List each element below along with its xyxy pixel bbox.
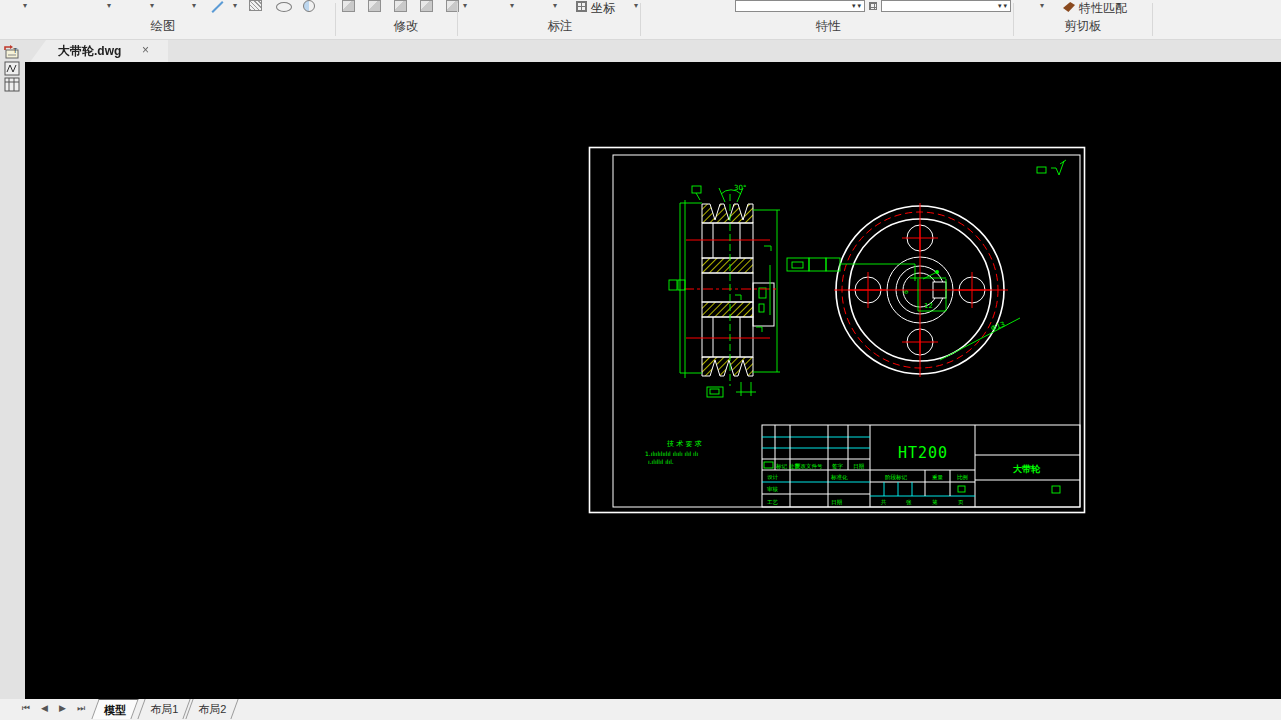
tb-process: 工艺 — [767, 499, 779, 505]
last-sheet-button[interactable]: ⏭ — [77, 703, 85, 714]
object-color-dropdown[interactable]: ▾ ▾ — [735, 0, 865, 12]
next-sheet-button[interactable]: ▶ — [59, 703, 66, 713]
tb-mark: 标记 — [775, 463, 788, 470]
front-view-annotations: 6 12 Φ13 — [787, 258, 1020, 360]
coordinates-button[interactable]: 坐标 — [591, 0, 615, 17]
dropdown-caret[interactable]: ▾ — [634, 1, 638, 11]
dim-groove-angle: 30° — [734, 184, 746, 192]
tb-scale: 比例 — [957, 474, 968, 481]
panel-label-annotate: 标注 — [515, 18, 605, 35]
tb-date: 日期 — [853, 463, 865, 470]
hatch-tool-icon[interactable] — [249, 0, 262, 11]
panel-label-draw: 绘图 — [118, 18, 208, 35]
match-properties-icon[interactable] — [1063, 0, 1075, 12]
dim-keyway-depth: 6 — [902, 290, 909, 294]
tb-page-no: 第 — [932, 499, 938, 505]
panel-divider — [1152, 3, 1153, 36]
left-tool-strip — [0, 62, 25, 699]
tab-layout1[interactable]: 布局1 — [137, 699, 190, 719]
pulley-drawing: 30° — [588, 146, 1086, 514]
paste-text-icon[interactable]: T — [3, 44, 21, 59]
tech-req-line1: 1.ılıılılıılıl ılıılı ılıl ılı — [645, 450, 698, 457]
document-tab-bar — [0, 40, 1281, 62]
dropdown-caret[interactable]: ▾ — [23, 1, 27, 11]
tb-design: 设计 — [767, 474, 779, 480]
rotate-tool-icon[interactable] — [394, 0, 407, 12]
tab-layout2[interactable]: 布局2 — [185, 699, 238, 719]
tb-standardize: 标准化 — [830, 474, 848, 481]
pulley-front-view — [834, 203, 1008, 377]
tab-model-label: 模型 — [96, 700, 134, 718]
dropdown-caret[interactable]: ▾ — [1040, 1, 1044, 11]
ellipse-tool-icon[interactable] — [276, 0, 292, 12]
dim-keyway-width: 12 — [924, 302, 933, 310]
panel-divider — [640, 3, 641, 36]
tech-req-title: 技 术 要 求 — [666, 440, 702, 448]
tab-layout1-label: 布局1 — [142, 699, 186, 717]
document-tab[interactable]: 大带轮.dwg × — [30, 40, 168, 62]
linetype-dropdown[interactable]: ▾ ▾ — [881, 0, 1011, 12]
panel-divider — [457, 3, 458, 36]
tech-req-line2: ı.ılıllıl ılıl. — [648, 458, 674, 465]
material-label: HT200 — [898, 444, 948, 462]
ribbon: ▾ ▾ ▾ ▾ ▾ ▾ ▾ ▾ 坐标 ▾ ▾ ▾ ▾ ▾ ▾ 特性匹配 绘图 修… — [0, 0, 1281, 40]
sheet-tab-bar: ⏮ ◀ ▶ ⏭ 模型 布局1 布局2 — [0, 699, 1281, 720]
dropdown-caret[interactable]: ▾ — [233, 1, 237, 11]
part-name-label: 大带轮 — [1013, 464, 1041, 474]
match-properties-button[interactable]: 特性匹配 — [1079, 0, 1127, 17]
tb-page: 页 — [958, 499, 964, 505]
panel-label-modify: 修改 — [361, 18, 451, 35]
dropdown-caret[interactable]: ▾ — [553, 1, 557, 11]
mirror-tool-icon[interactable] — [420, 0, 433, 12]
polyline-icon[interactable] — [3, 61, 21, 76]
line-tool-icon[interactable] — [210, 0, 225, 8]
tb-sheets: 张 — [906, 499, 912, 506]
properties-small-icon[interactable] — [869, 2, 877, 10]
copy-tool-icon[interactable] — [368, 0, 381, 12]
tb-sign: 签字 — [832, 463, 844, 470]
pulley-section-view: 30° — [669, 184, 780, 397]
tb-total: 共 — [880, 499, 887, 505]
technical-requirements: 技 术 要 求 1.ılıılılıılıl ılıılı ılıl ılı ı… — [645, 440, 702, 465]
panel-label-clipboard: 剪切板 — [1038, 18, 1128, 35]
dropdown-caret[interactable]: ▾ — [150, 1, 154, 11]
tb-date2: 日期 — [831, 499, 843, 506]
table-style-icon[interactable] — [3, 77, 21, 92]
close-tab-icon[interactable]: × — [142, 43, 149, 57]
tb-check: 审核 — [767, 486, 779, 492]
svg-text:T: T — [13, 47, 18, 54]
first-sheet-button[interactable]: ⏮ — [22, 703, 30, 714]
title-block: 标记 处数 更改文件号 签字 日期 设计 标准化 审核 工艺 日期 HT200 … — [762, 425, 1080, 507]
tb-weight: 重量 — [932, 474, 944, 480]
tb-change-file: 更改文件号 — [795, 463, 823, 469]
tab-model[interactable]: 模型 — [91, 699, 138, 719]
prev-sheet-button[interactable]: ◀ — [41, 703, 48, 713]
dropdown-caret[interactable]: ▾ — [510, 1, 514, 11]
panel-divider — [1013, 3, 1014, 36]
dim-bolt-hole: Φ13 — [990, 320, 1006, 332]
document-tab-title: 大带轮.dwg — [58, 43, 121, 60]
tab-layout2-label: 布局2 — [190, 699, 234, 717]
coordinates-icon[interactable] — [576, 1, 587, 12]
surface-roughness-symbols — [1037, 160, 1066, 175]
tb-stage: 阶段标记 — [885, 474, 908, 481]
dropdown-caret[interactable]: ▾ — [107, 1, 111, 11]
gradient-tool-icon[interactable] — [303, 0, 315, 12]
panel-divider — [335, 3, 336, 36]
panel-label-properties: 特性 — [783, 18, 873, 35]
dropdown-caret[interactable]: ▾ — [192, 1, 196, 11]
move-tool-icon[interactable] — [342, 0, 355, 12]
dropdown-caret[interactable]: ▾ — [463, 1, 467, 11]
